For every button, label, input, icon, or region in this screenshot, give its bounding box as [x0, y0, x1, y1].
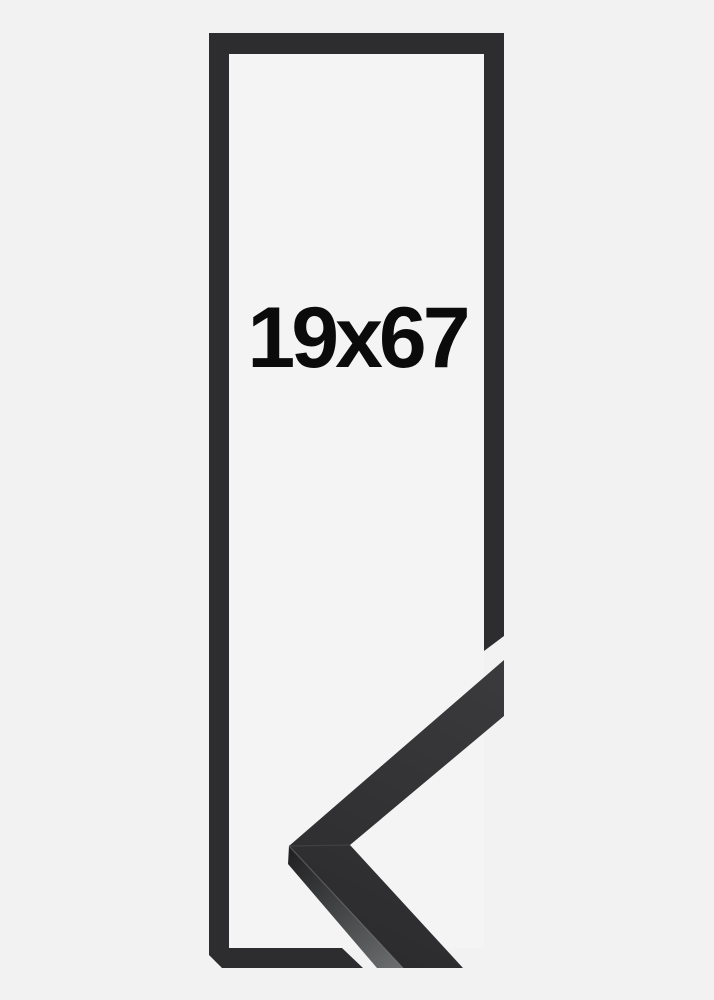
product-image-canvas: 19x67 — [0, 0, 714, 1000]
frame-illustration — [0, 0, 714, 1000]
size-label: 19x67 — [229, 295, 485, 381]
